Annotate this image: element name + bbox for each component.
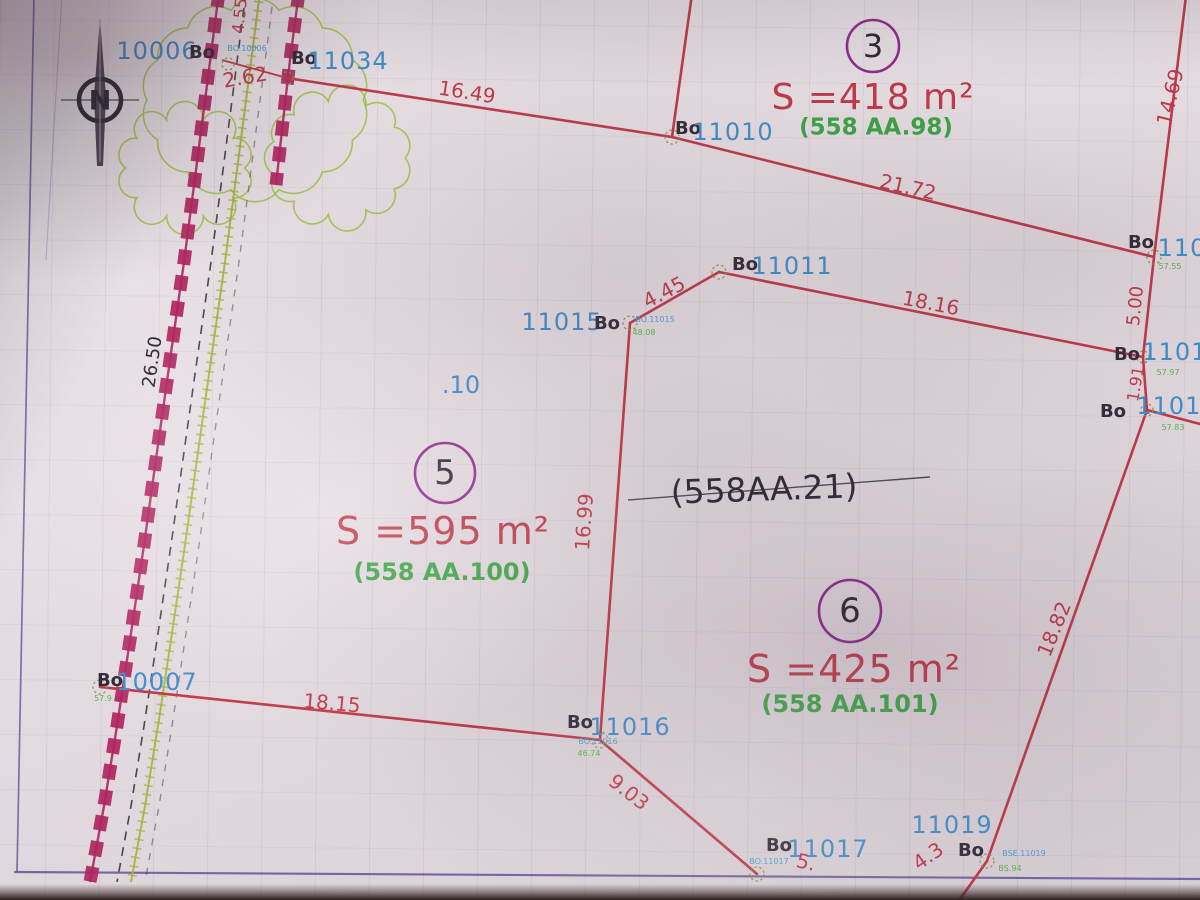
point-label-11012: 110 xyxy=(1158,236,1200,260)
cadastral-plan-photo: 10006BoBO.10006Bo110342.624.5526.5016.49… xyxy=(0,0,1200,900)
point-label-10007: 10007 xyxy=(116,670,197,694)
dimension-16-99: 16.99 xyxy=(572,493,596,552)
parcel-6-area: S =425 m² xyxy=(747,650,961,688)
point-label-11016: 11016 xyxy=(589,715,670,739)
dimension-4-45: 4.45 xyxy=(640,273,689,312)
bo-prefix-11012: Bo xyxy=(1128,234,1154,252)
point-sublabel-11015b: 48.08 xyxy=(633,329,656,337)
point-sublabel-11019b: BS.94 xyxy=(998,865,1021,873)
point-label-11011: 11011 xyxy=(751,254,832,278)
dimension-2-62: 2.62 xyxy=(221,63,268,90)
bo-prefix-10006: Bo xyxy=(189,44,215,62)
point-sublabel-11014: 57.83 xyxy=(1162,424,1185,432)
dimension-21-72: 21.72 xyxy=(878,171,938,203)
point-label-11014: 11014 xyxy=(1136,394,1200,418)
bo-prefix-11015: Bo xyxy=(594,315,620,333)
parcel-5-area: S =595 m² xyxy=(336,512,550,550)
point-sublabel-11012: 57.55 xyxy=(1159,263,1182,271)
dimension-4-3: 4.3 xyxy=(909,839,947,874)
crossed-ref: (558AA.21) xyxy=(670,469,858,508)
dimension-9-03: 9.03 xyxy=(605,770,652,813)
parcel-6-ref: (558 AA.101) xyxy=(761,692,938,716)
dimension-18-82: 18.82 xyxy=(1034,599,1074,660)
point-sublabel-11016b: 46.74 xyxy=(578,750,601,758)
point-label-11010: 11010 xyxy=(692,120,773,144)
dimension-18-15: 18.15 xyxy=(303,691,362,716)
dimension-26-50: 26.50 xyxy=(141,335,166,389)
north-label: N xyxy=(89,88,112,115)
bo-prefix-11014: Bo xyxy=(1100,403,1126,421)
dimension-16-49: 16.49 xyxy=(437,78,497,107)
point-label-10: .10 xyxy=(442,373,480,397)
point-sublabel-11017: BO.11017 xyxy=(749,858,788,866)
dimension-5-00: 5.00 xyxy=(1125,285,1147,327)
parcel-3-area: S =418 m² xyxy=(771,80,974,116)
parcel-3-number: 3 xyxy=(863,30,883,62)
map-labels: 10006BoBO.10006Bo110342.624.5526.5016.49… xyxy=(0,0,1200,900)
parcel-5-ref: (558 AA.100) xyxy=(353,560,530,584)
parcel-5-number: 5 xyxy=(434,456,456,490)
point-sublabel-11019a: BSE.11019 xyxy=(1002,850,1045,858)
dimension-5: 5. xyxy=(795,850,818,874)
point-label-10006: 10006 xyxy=(116,39,197,63)
point-label-11019: 11019 xyxy=(911,813,992,837)
parcel-3-ref: (558 AA.98) xyxy=(799,117,953,140)
dimension-4-55: 4.55 xyxy=(230,0,250,35)
point-sublabel-11015a: BO.11015 xyxy=(635,316,674,324)
point-sublabel-10006: BO.10006 xyxy=(227,45,266,53)
parcel-6-number: 6 xyxy=(839,594,861,628)
point-label-11013: 11013 xyxy=(1142,340,1200,364)
dimension-14-69: 14.69 xyxy=(1153,67,1186,127)
dimension-18-16: 18.16 xyxy=(901,288,961,319)
point-label-11015: 11015 xyxy=(521,310,602,334)
point-label-11034: 11034 xyxy=(307,49,388,73)
point-sublabel-11016a: BO.11016 xyxy=(578,738,617,746)
point-sublabel-10007: 57.9 xyxy=(94,695,112,703)
bo-prefix-11019: Bo xyxy=(958,842,984,860)
point-sublabel-11013: 57.97 xyxy=(1157,369,1180,377)
bo-prefix-11013: Bo xyxy=(1114,346,1140,364)
